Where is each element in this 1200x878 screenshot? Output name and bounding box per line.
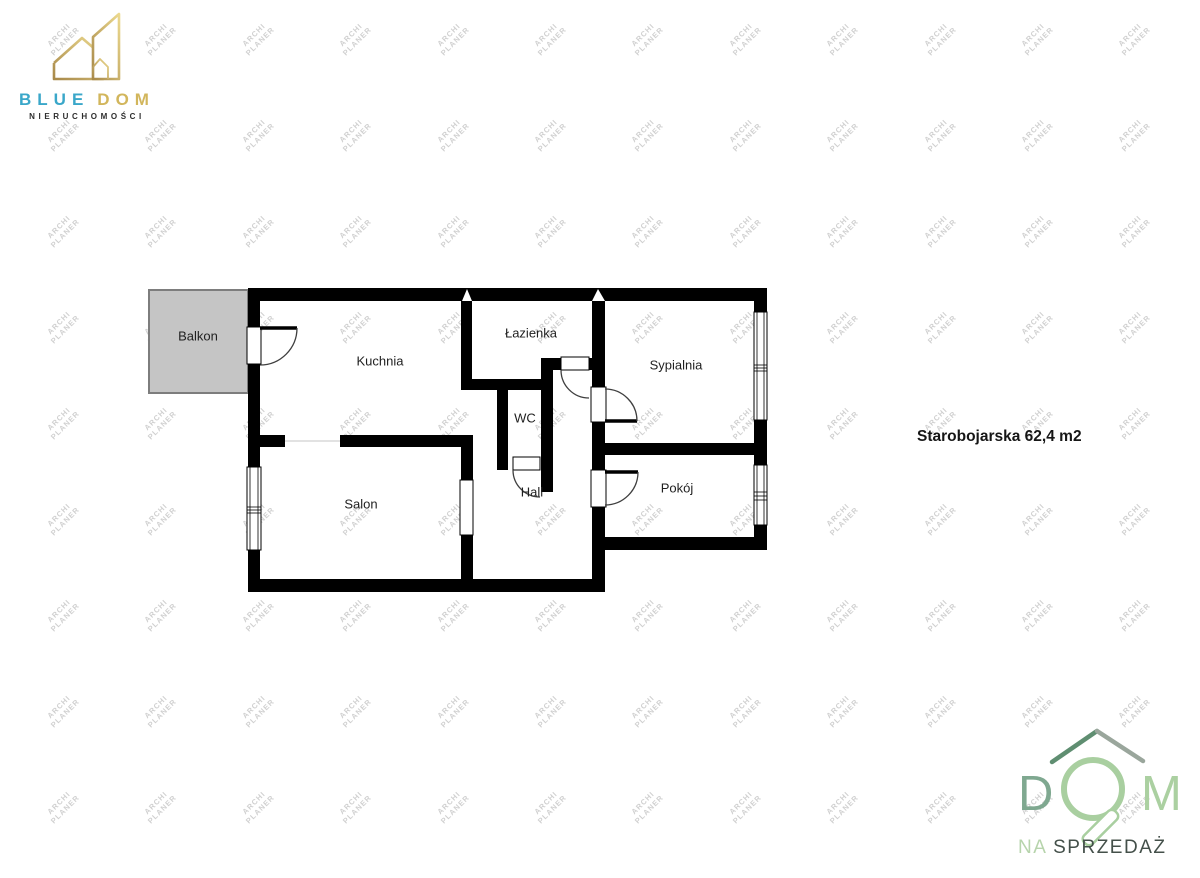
watermark-tile: ARCHIPLANER — [719, 685, 768, 734]
watermark-tile: ARCHIPLANER — [719, 109, 768, 158]
watermark-tile: ARCHIPLANER — [622, 781, 671, 830]
window — [754, 312, 767, 420]
watermark-tile: ARCHIPLANER — [329, 685, 378, 734]
watermark-tile: ARCHIPLANER — [1109, 13, 1158, 62]
watermark-tile: ARCHIPLANER — [914, 589, 963, 638]
watermark-tile: ARCHIPLANER — [1011, 109, 1060, 158]
wall — [461, 447, 473, 480]
wall — [592, 301, 605, 387]
watermark-tile: ARCHIPLANER — [914, 13, 963, 62]
watermark-tile: ARCHIPLANER — [524, 397, 573, 446]
watermark-tile: ARCHIPLANER — [524, 301, 573, 350]
wall — [248, 579, 605, 592]
watermark-tile: ARCHIPLANER — [1011, 205, 1060, 254]
tagline-sprzedaz: SPRZEDAŻ — [1053, 837, 1166, 858]
watermark-tile: ARCHIPLANER — [816, 781, 865, 830]
watermark-tile: ARCHIPLANER — [37, 205, 86, 254]
watermark-tile: ARCHIPLANER — [914, 781, 963, 830]
watermark-tile: ARCHIPLANER — [816, 205, 865, 254]
watermark-tile: ARCHIPLANER — [816, 493, 865, 542]
door-opening — [513, 457, 540, 470]
watermark-tile: ARCHIPLANER — [524, 589, 573, 638]
bluedom-wordmark: BLUEDOM — [2, 90, 172, 110]
watermark-tile: ARCHIPLANER — [719, 781, 768, 830]
watermark-tile: ARCHIPLANER — [816, 13, 865, 62]
watermark-tile: ARCHIPLANER — [232, 205, 281, 254]
tagline: NA SPRZEDAŻ — [1018, 837, 1166, 858]
address-area-label: Starobojarska 62,4 m2 — [917, 428, 1082, 446]
watermark-tile: ARCHIPLANER — [329, 589, 378, 638]
wall — [592, 537, 767, 550]
room-label-kuchnia: Kuchnia — [357, 353, 405, 368]
watermark-tile: ARCHIPLANER — [427, 301, 476, 350]
room-label-wc: WC — [514, 410, 536, 425]
watermark-tile: ARCHIPLANER — [719, 589, 768, 638]
domnasprzedaz-icon: D M NA SPRZEDAŻ — [1010, 723, 1200, 868]
wall — [592, 507, 605, 537]
door-opening — [591, 387, 606, 422]
door-swing-arc — [260, 328, 297, 365]
watermark-tile: ARCHIPLANER — [1109, 397, 1158, 446]
bluedom-house-icon — [42, 6, 142, 88]
wall-notch — [592, 289, 605, 301]
watermark-tile: ARCHIPLANER — [329, 13, 378, 62]
wall — [589, 358, 605, 370]
wall — [340, 435, 473, 447]
watermark-tile: ARCHIPLANER — [914, 301, 963, 350]
door-swing-arc — [605, 472, 638, 505]
watermark-tile: ARCHIPLANER — [719, 397, 768, 446]
watermark-tile: ARCHIPLANER — [719, 301, 768, 350]
door-opening — [460, 480, 473, 535]
door-opening — [247, 327, 261, 364]
watermark-tile: ARCHIPLANER — [622, 493, 671, 542]
wall — [592, 443, 767, 455]
watermark-tile: ARCHIPLANER — [719, 493, 768, 542]
window — [247, 467, 261, 550]
wall — [541, 358, 553, 492]
watermark-tile: ARCHIPLANER — [427, 397, 476, 446]
watermark-tile: ARCHIPLANER — [232, 781, 281, 830]
watermark-tile: ARCHIPLANER — [914, 205, 963, 254]
watermark-tile: ARCHIPLANER — [622, 301, 671, 350]
watermark-tile: ARCHIPLANER — [37, 301, 86, 350]
watermark-tile: ARCHIPLANER — [135, 205, 184, 254]
watermark-tile: ARCHIPLANER — [719, 13, 768, 62]
room-label-hall: Hall — [521, 484, 544, 499]
watermark-tile: ARCHIPLANER — [1109, 493, 1158, 542]
watermark-tile: ARCHIPLANER — [622, 205, 671, 254]
watermark-tile: ARCHIPLANER — [816, 685, 865, 734]
wall — [497, 390, 508, 470]
watermark-tile: ARCHIPLANER — [232, 685, 281, 734]
dom-letter-d: D — [1018, 767, 1053, 821]
watermark-tile: ARCHIPLANER — [524, 205, 573, 254]
watermark-tile: ARCHIPLANER — [524, 685, 573, 734]
watermark-tile: ARCHIPLANER — [622, 589, 671, 638]
watermark-tile: ARCHIPLANER — [719, 205, 768, 254]
watermark-tile: ARCHIPLANER — [427, 205, 476, 254]
watermark-tile: ARCHIPLANER — [37, 589, 86, 638]
bluedom-subtitle: NIERUCHOMOŚCI — [2, 112, 172, 121]
roof-right-icon — [1097, 731, 1143, 761]
watermark-tile: ARCHIPLANER — [135, 589, 184, 638]
watermark-tile: ARCHIPLANER — [427, 109, 476, 158]
room-label-pokoj: Pokój — [661, 480, 694, 495]
door-opening — [591, 470, 606, 507]
watermark-tile: ARCHIPLANER — [135, 493, 184, 542]
room-label-salon: Salon — [344, 496, 377, 511]
watermark-tile: ARCHIPLANER — [135, 685, 184, 734]
watermark-tile: ARCHIPLANER — [427, 493, 476, 542]
watermark-tile: ARCHIPLANER — [1011, 493, 1060, 542]
tagline-na: NA — [1018, 837, 1053, 858]
wall — [248, 288, 767, 301]
watermark-tile: ARCHIPLANER — [524, 109, 573, 158]
wall — [461, 535, 473, 579]
watermark-tile: ARCHIPLANER — [329, 301, 378, 350]
watermark-tile: ARCHIPLANER — [37, 493, 86, 542]
watermark-tile: ARCHIPLANER — [524, 493, 573, 542]
watermark-tile: ARCHIPLANER — [135, 781, 184, 830]
bluedom-word-dom: DOM — [97, 90, 155, 109]
watermark-tile: ARCHIPLANER — [622, 13, 671, 62]
watermark-tile: ARCHIPLANER — [329, 109, 378, 158]
wall — [592, 537, 605, 592]
watermark-tile: ARCHIPLANER — [329, 781, 378, 830]
watermark-tile: ARCHIPLANER — [232, 493, 281, 542]
page: ARCHIPLANERARCHIPLANERARCHIPLANERARCHIPL… — [0, 0, 1200, 878]
room-label-sypialnia: Sypialnia — [650, 357, 704, 372]
dom-letter-m: M — [1141, 767, 1182, 821]
wall — [260, 435, 285, 447]
watermark-tile: ARCHIPLANER — [914, 685, 963, 734]
watermark-tile: ARCHIPLANER — [816, 397, 865, 446]
watermark-tile: ARCHIPLANER — [37, 397, 86, 446]
watermark-tile: ARCHIPLANER — [232, 589, 281, 638]
wall — [541, 358, 561, 370]
watermark-tile: ARCHIPLANER — [329, 493, 378, 542]
watermark-tile: ARCHIPLANER — [1011, 13, 1060, 62]
watermark-tile: ARCHIPLANER — [329, 397, 378, 446]
room-label-lazienka: Łazienka — [505, 325, 558, 340]
watermark-tile: ARCHIPLANER — [816, 589, 865, 638]
door-opening — [561, 357, 589, 370]
room-label-balkon: Balkon — [178, 328, 218, 343]
watermark-tile: ARCHIPLANER — [1109, 205, 1158, 254]
watermark-tile: ARCHIPLANER — [232, 301, 281, 350]
watermark-tile: ARCHIPLANER — [914, 109, 963, 158]
watermark-tile: ARCHIPLANER — [524, 781, 573, 830]
watermark-tile: ARCHIPLANER — [427, 589, 476, 638]
watermark-tile: ARCHIPLANER — [622, 397, 671, 446]
wall — [248, 288, 260, 592]
watermark-tile: ARCHIPLANER — [622, 109, 671, 158]
door-swing-arc — [605, 389, 637, 421]
bluedom-word-blue: BLUE — [19, 90, 89, 109]
window — [754, 465, 767, 525]
watermark-tile: ARCHIPLANER — [1011, 301, 1060, 350]
wall — [592, 422, 605, 470]
watermark-tile: ARCHIPLANER — [135, 397, 184, 446]
wall — [461, 379, 553, 390]
watermark-tile: ARCHIPLANER — [37, 685, 86, 734]
watermark-tile: ARCHIPLANER — [1109, 301, 1158, 350]
watermark-tile: ARCHIPLANER — [427, 781, 476, 830]
watermark-tile: ARCHIPLANER — [427, 685, 476, 734]
wall — [461, 301, 472, 379]
watermark-tile: ARCHIPLANER — [37, 781, 86, 830]
watermark-tile: ARCHIPLANER — [914, 493, 963, 542]
watermark-tile: ARCHIPLANER — [232, 109, 281, 158]
watermark-tile: ARCHIPLANER — [232, 397, 281, 446]
watermark-tile: ARCHIPLANER — [232, 13, 281, 62]
door-swing-arc — [561, 370, 589, 398]
watermark-tile: ARCHIPLANER — [524, 13, 573, 62]
balcony-area — [149, 290, 248, 393]
watermark-tile: ARCHIPLANER — [816, 109, 865, 158]
watermark-tile: ARCHIPLANER — [329, 205, 378, 254]
watermark-tile: ARCHIPLANER — [135, 13, 184, 62]
watermark-tile: ARCHIPLANER — [1109, 109, 1158, 158]
watermark-tile: ARCHIPLANER — [427, 13, 476, 62]
watermark-tile: ARCHIPLANER — [135, 301, 184, 350]
watermark-tile: ARCHIPLANER — [1109, 589, 1158, 638]
wall-notch — [462, 289, 472, 301]
watermark-tile: ARCHIPLANER — [1011, 589, 1060, 638]
domnasprzedaz-logo: D M NA SPRZEDAŻ — [1010, 723, 1200, 873]
watermark-tile: ARCHIPLANER — [816, 301, 865, 350]
door-swing-arc — [513, 470, 540, 497]
wall — [754, 288, 767, 550]
watermark-tile: ARCHIPLANER — [622, 685, 671, 734]
